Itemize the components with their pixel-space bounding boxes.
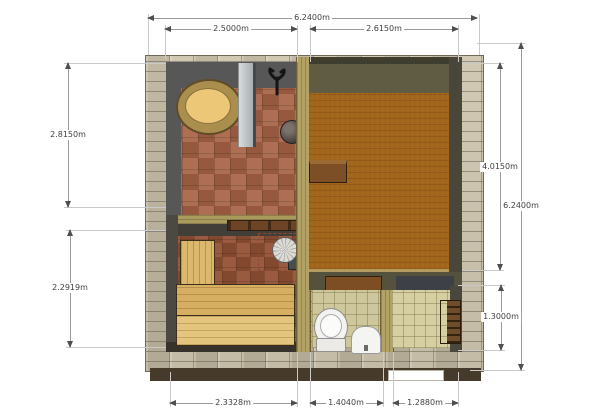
bidet-drain bbox=[364, 345, 368, 351]
wall-hooks-icon bbox=[264, 66, 290, 96]
dim-label-right-lower: 1.3000m bbox=[481, 312, 521, 322]
entrance-step bbox=[388, 370, 444, 381]
ext-line bbox=[64, 207, 166, 208]
dim-label-bottom-right: 1.2880m bbox=[405, 398, 445, 408]
hall-radiator bbox=[440, 300, 461, 344]
ext-line bbox=[297, 352, 298, 407]
shower-screen bbox=[238, 63, 256, 147]
wall-shelf bbox=[309, 160, 347, 183]
washroom-wall-left bbox=[166, 62, 181, 218]
sauna-heater-icon bbox=[272, 237, 298, 263]
ext-line bbox=[470, 370, 525, 371]
sauna-bench-side bbox=[180, 240, 215, 288]
dim-label-top-total: 6.2400m bbox=[292, 13, 332, 23]
ext-line bbox=[393, 352, 394, 407]
dim-label-bottom-left: 2.3328m bbox=[213, 398, 253, 408]
dim-label-top-left-span: 2.5000m bbox=[211, 24, 251, 34]
sauna-bench-upper bbox=[176, 284, 295, 317]
wooden-tub-interior bbox=[185, 88, 231, 124]
ext-line bbox=[479, 14, 480, 55]
ext-line bbox=[64, 63, 166, 64]
ext-line bbox=[66, 347, 166, 348]
ext-line bbox=[66, 230, 166, 231]
dim-label-right-total: 6.2400m bbox=[501, 201, 541, 211]
dim-label-left-lower: 2.2919m bbox=[50, 283, 90, 293]
dim-label-top-right-span: 2.6150m bbox=[364, 24, 404, 34]
sauna-bench-lower bbox=[176, 315, 295, 346]
dim-label-bottom-center: 1.4040m bbox=[326, 398, 366, 408]
bidet bbox=[351, 326, 381, 354]
wooden-tub bbox=[176, 79, 242, 135]
restroom-wall-top bbox=[309, 57, 462, 93]
toilet-tank bbox=[316, 338, 346, 352]
dim-label-right-inner: 4.0150m bbox=[480, 162, 520, 172]
ext-line bbox=[310, 352, 311, 407]
dim-label-left-upper: 2.8150m bbox=[48, 130, 88, 140]
ext-line bbox=[383, 352, 384, 407]
floor-plan-canvas: 6.2400m 2.5000m 2.6150m 2.8150m 2.2919m … bbox=[0, 0, 600, 417]
restroom-wall-right bbox=[449, 57, 462, 286]
toilet-bowl-inner bbox=[320, 314, 342, 338]
